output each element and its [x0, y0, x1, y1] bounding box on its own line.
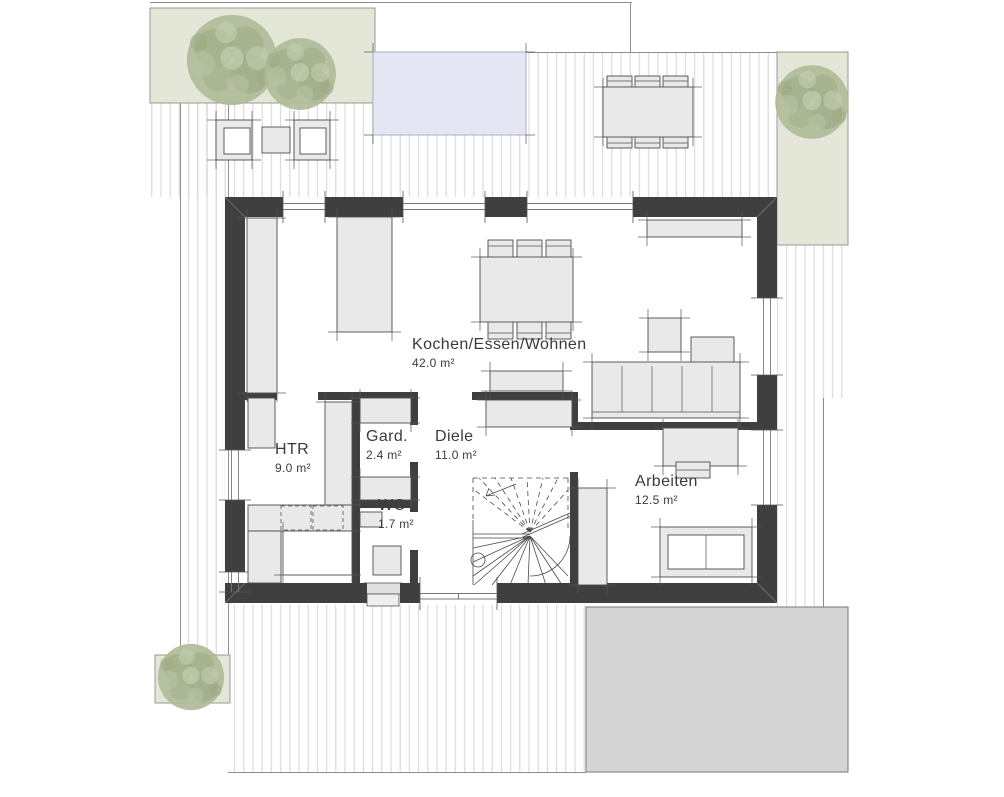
tree-icon	[264, 38, 336, 110]
dining-table	[480, 257, 573, 322]
room-area: 12.5 m²	[635, 494, 698, 507]
room-label-wc: WC 1.7 m²	[378, 498, 414, 530]
tree-icon	[158, 644, 224, 710]
room-label-htr: HTR 9.0 m²	[275, 442, 311, 474]
room-name: Diele	[435, 429, 477, 446]
floor-plan-drawing	[0, 0, 1004, 797]
room-name: Kochen/Essen/Wohnen	[412, 337, 587, 354]
floor-plan: Kochen/Essen/Wohnen 42.0 m² Diele 11.0 m…	[0, 0, 1004, 797]
room-label-kochen-essen-wohnen: Kochen/Essen/Wohnen 42.0 m²	[412, 337, 587, 369]
room-name: Arbeiten	[635, 474, 698, 491]
tree-icon	[187, 15, 277, 105]
planting-bed-top-left	[150, 8, 375, 110]
sofa-group	[583, 309, 749, 427]
coffee-table	[648, 318, 681, 352]
staircase	[471, 478, 571, 585]
tree-icon	[775, 65, 849, 139]
room-label-garderobe: Gard. 2.4 m²	[366, 429, 408, 461]
room-area: 9.0 m²	[275, 462, 311, 475]
outdoor-table	[603, 87, 693, 137]
kitchen-counter	[238, 209, 286, 402]
room-name: WC	[378, 498, 414, 515]
handrail	[522, 513, 571, 537]
room-name: HTR	[275, 442, 311, 459]
wardrobe	[578, 488, 607, 585]
room-area: 2.4 m²	[366, 449, 408, 462]
pool	[373, 52, 526, 135]
room-area: 1.7 m²	[378, 518, 414, 531]
room-area: 42.0 m²	[412, 357, 587, 370]
kitchen-island	[337, 217, 392, 332]
room-label-arbeiten: Arbeiten 12.5 m²	[635, 474, 698, 506]
room-area: 11.0 m²	[435, 449, 477, 462]
dining-set	[471, 240, 582, 339]
entry-steps	[364, 583, 402, 606]
outdoor-dining-set	[594, 76, 702, 148]
desk	[663, 428, 738, 466]
driveway	[586, 607, 848, 772]
toilet	[373, 546, 401, 575]
planting-bed-right	[775, 52, 849, 245]
room-name: Gard.	[366, 429, 408, 446]
room-label-diele: Diele 11.0 m²	[435, 429, 477, 461]
sideboard	[647, 220, 742, 237]
utility-room-fixtures	[248, 393, 361, 584]
sofa	[592, 362, 740, 418]
